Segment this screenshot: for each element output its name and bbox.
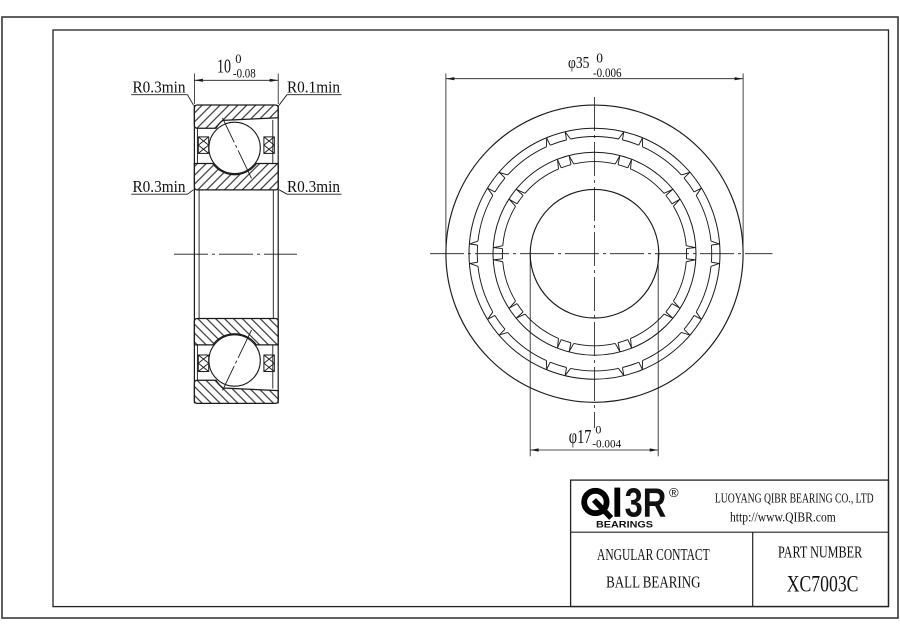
svg-text:®: ® [669,485,679,500]
svg-text:0: 0 [235,52,241,66]
svg-text:φ35: φ35 [568,53,590,72]
svg-text:XC7003C: XC7003C [787,571,859,597]
svg-text:R0.3min: R0.3min [133,177,186,196]
svg-text:PART NUMBER: PART NUMBER [778,542,863,561]
svg-text:BEARINGS: BEARINGS [596,520,653,531]
svg-text:R0.3min: R0.3min [133,78,186,97]
svg-text:R0.3min: R0.3min [287,177,340,196]
svg-text:-0.08: -0.08 [233,66,256,80]
svg-text:0: 0 [596,51,603,66]
svg-text:ANGULAR CONTACT: ANGULAR CONTACT [597,545,710,564]
svg-text:-0.006: -0.006 [593,65,622,80]
svg-text:φ17: φ17 [569,426,592,448]
svg-text:BALL BEARING: BALL BEARING [606,573,700,592]
svg-text:LUOYANG QIBR BEARING CO., LTD: LUOYANG QIBR BEARING CO., LTD [715,491,874,506]
svg-text:http://www.QIBR.com: http://www.QIBR.com [730,511,836,526]
svg-text:-0.004: -0.004 [592,436,621,450]
svg-text:10: 10 [217,55,231,77]
svg-text:R0.1min: R0.1min [287,78,340,97]
svg-text:0: 0 [595,423,601,437]
